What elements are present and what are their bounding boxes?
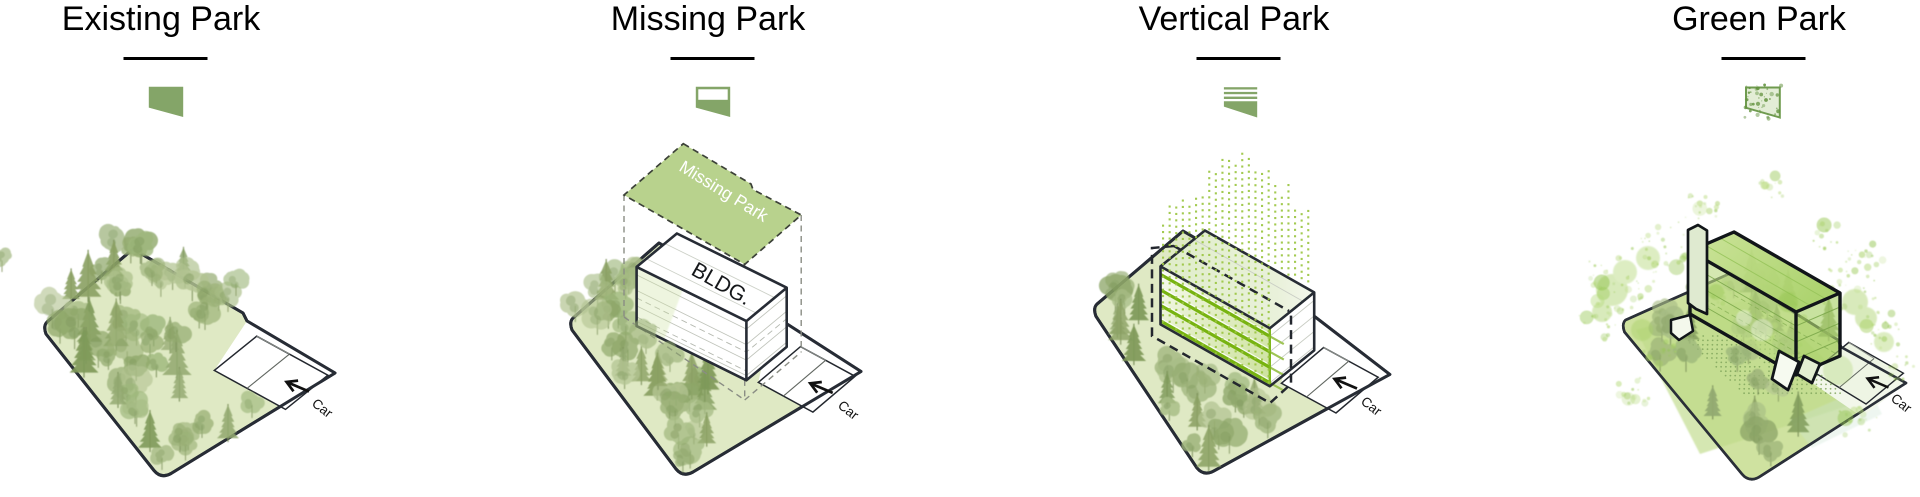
svg-text:Vertical Park: Vertical Park	[1139, 0, 1331, 38]
svg-text:Missing Park: Missing Park	[611, 0, 807, 38]
svg-text:Green Park: Green Park	[1672, 0, 1847, 38]
svg-text:Car: Car	[1358, 394, 1385, 420]
svg-text:Car: Car	[835, 398, 862, 424]
svg-text:Car: Car	[1888, 391, 1915, 417]
svg-text:Car: Car	[309, 396, 336, 422]
svg-text:Existing Park: Existing Park	[62, 0, 261, 38]
